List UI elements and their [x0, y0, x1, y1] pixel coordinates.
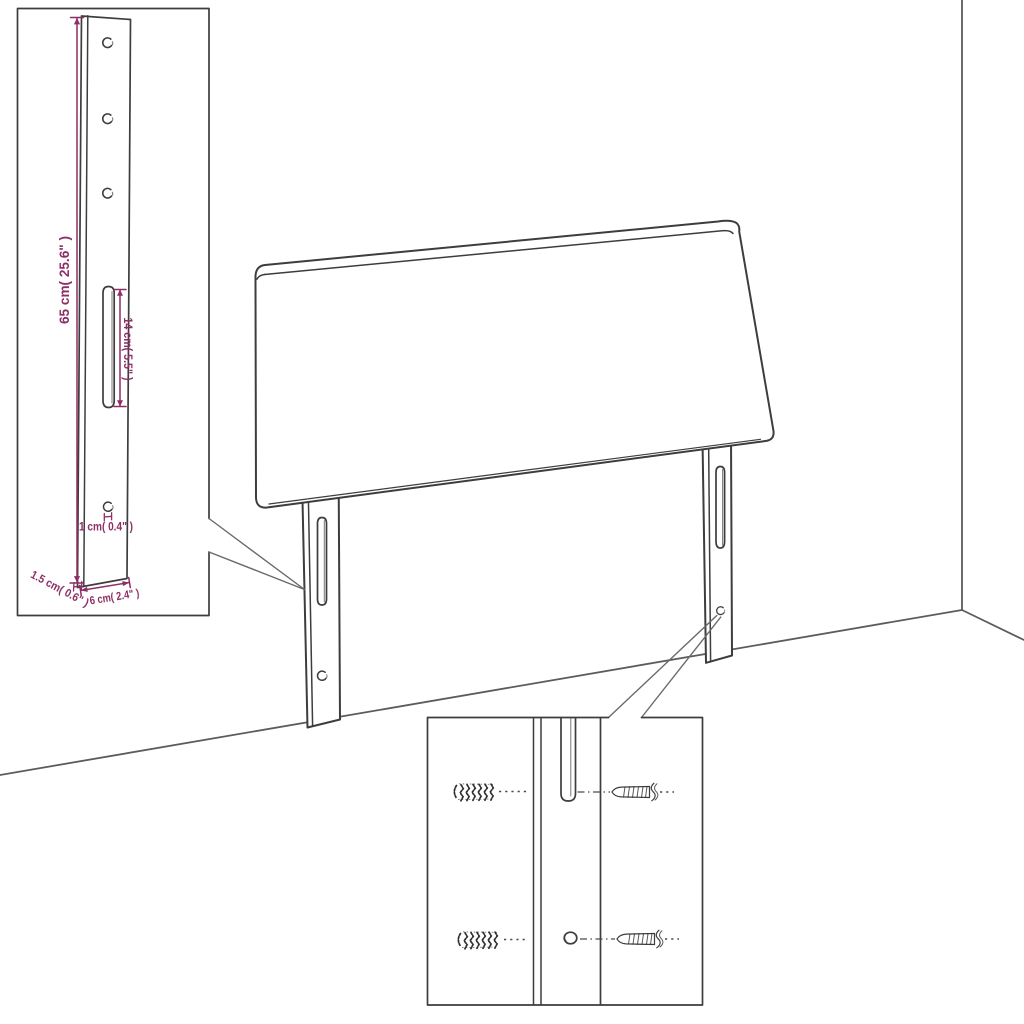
detail-leg-slot	[103, 287, 114, 408]
dimension-label-hole-diameter: 1 cm( 0.4" )	[79, 522, 133, 534]
leg-detail-callout-lines	[209, 519, 305, 590]
mounting-leg-slot	[561, 718, 576, 801]
alignment-guide-lines	[499, 792, 679, 940]
mounting-leg-hole	[564, 932, 577, 944]
floor-line-left	[0, 610, 962, 775]
mounting-inset-border	[428, 718, 703, 1006]
dimension-label-leg-height: 65 cm( 25.6" )	[57, 236, 72, 324]
left-leg-slot	[318, 518, 327, 606]
diagram-canvas: 65 cm( 25.6" ) 14 cm( 5.5" ) 1 cm( 0.4" …	[0, 0, 1024, 1024]
mounting-leg-strip	[534, 718, 601, 1005]
mounting-callout-lines	[609, 616, 721, 718]
mounting-detail-inset	[428, 616, 721, 1006]
floor-line-right	[962, 610, 1024, 640]
screw-top	[612, 783, 658, 801]
right-leg	[703, 437, 733, 663]
leg-detail-drawing	[78, 16, 131, 588]
dimension-label-slot-length: 14 cm( 5.5" )	[121, 318, 133, 381]
headboard-panel-face	[256, 221, 774, 508]
right-leg-slot	[716, 467, 725, 549]
wall-plug-top	[454, 784, 493, 801]
wall-plug-bottom	[458, 932, 497, 949]
headboard-assembly-diagram: 65 cm( 25.6" ) 14 cm( 5.5" ) 1 cm( 0.4" …	[0, 0, 1024, 1024]
dimension-label-leg-width: 6 cm( 2.4" )	[89, 588, 140, 608]
screw-bottom	[617, 930, 663, 948]
headboard-panel	[256, 221, 774, 508]
